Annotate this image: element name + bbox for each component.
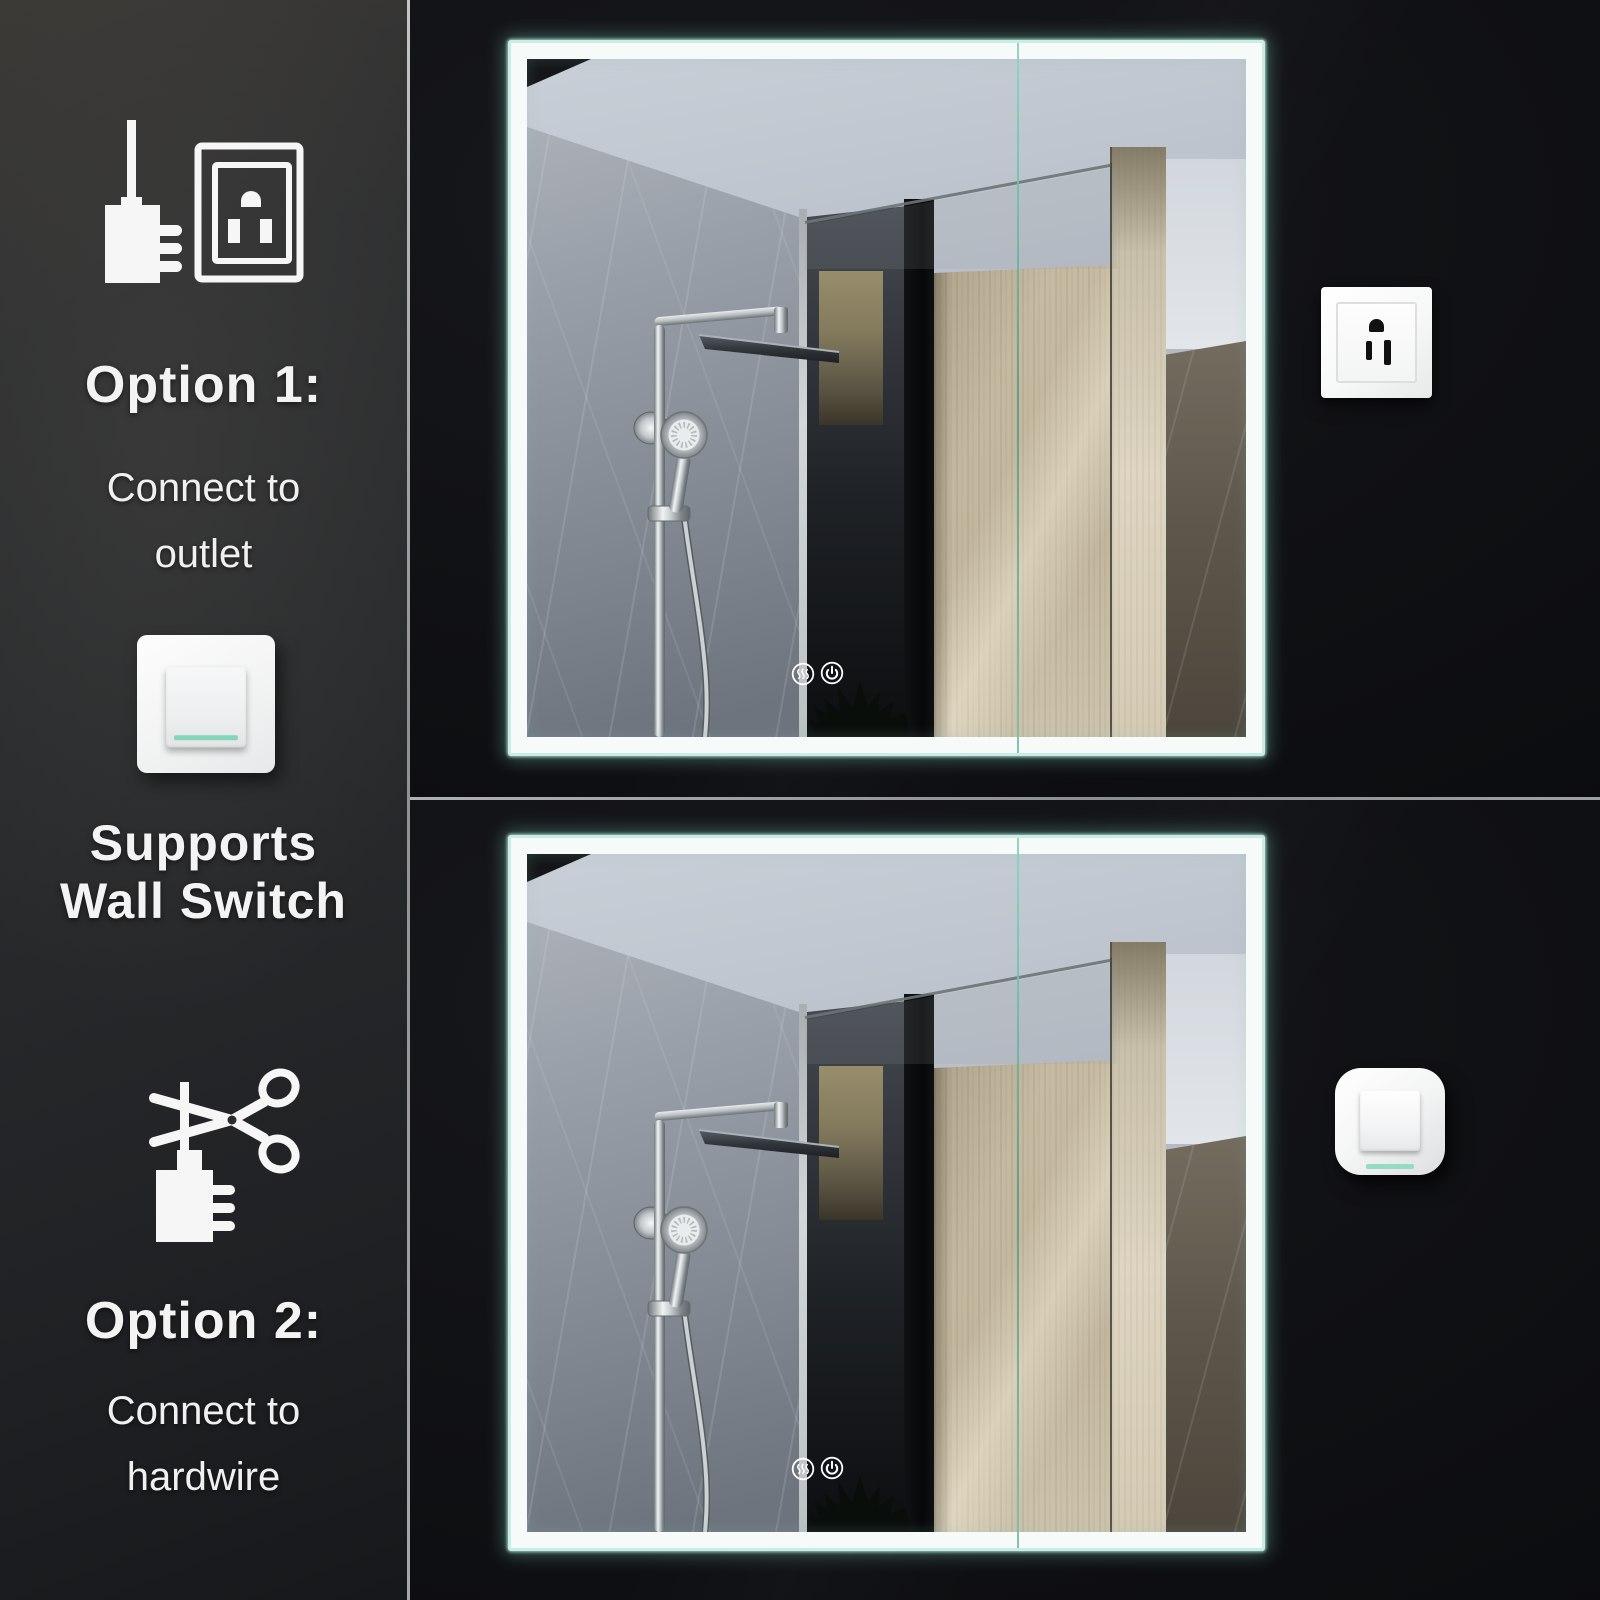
installation-options-infographic: Option 1: Connect to outlet Supports Wal… <box>0 0 1600 1600</box>
switch-indicator-line <box>1366 1164 1414 1169</box>
scissors-icon <box>154 1067 301 1175</box>
wall-switch-title: Supports Wall Switch <box>0 814 407 930</box>
led-mirror-cabinet <box>508 40 1265 756</box>
power-plug-icon <box>105 120 182 283</box>
outlet-face <box>1336 302 1417 383</box>
scene-vignette <box>527 854 1246 1532</box>
mirror-door-seam <box>1017 838 1019 1548</box>
led-mirror-cabinet <box>508 835 1265 1551</box>
switch-indicator-line <box>174 735 238 740</box>
wall-switch-graphic <box>1335 1068 1445 1175</box>
photo-outlet-installation <box>410 0 1600 797</box>
option2-subtitle-line1: Connect to <box>107 1389 300 1433</box>
power-outlet-icon <box>198 146 300 279</box>
option1-icons <box>98 113 310 285</box>
option2-subtitle: Connect to hardwire <box>0 1378 407 1510</box>
wall-switch-title-line1: Supports <box>90 815 317 871</box>
mirror-reflection <box>527 59 1246 737</box>
switch-rocker <box>1360 1090 1420 1150</box>
switch-rocker <box>166 667 246 747</box>
scene-vignette <box>527 59 1246 737</box>
outlet-slot-left <box>1366 341 1372 360</box>
option1-subtitle-line1: Connect to <box>107 466 300 510</box>
scissors-cutting-cord-icon <box>138 1038 304 1256</box>
power-outlet-graphic <box>1321 287 1432 398</box>
outlet-slot-right <box>1384 340 1391 365</box>
outlet-ground-hole <box>1369 319 1384 332</box>
mirror-reflection <box>527 854 1246 1532</box>
sidebar: Option 1: Connect to outlet Supports Wal… <box>0 0 407 1600</box>
option2-title: Option 2: <box>0 1291 407 1351</box>
photo-hardwire-installation <box>410 800 1600 1600</box>
wall-switch-icon <box>137 635 275 773</box>
option1-subtitle: Connect to outlet <box>0 455 407 587</box>
option2-subtitle-line2: hardwire <box>127 1455 280 1499</box>
wall-switch-title-line2: Wall Switch <box>60 873 347 929</box>
option1-title: Option 1: <box>0 355 407 415</box>
option1-subtitle-line2: outlet <box>155 532 253 576</box>
mirror-door-seam <box>1017 43 1019 753</box>
